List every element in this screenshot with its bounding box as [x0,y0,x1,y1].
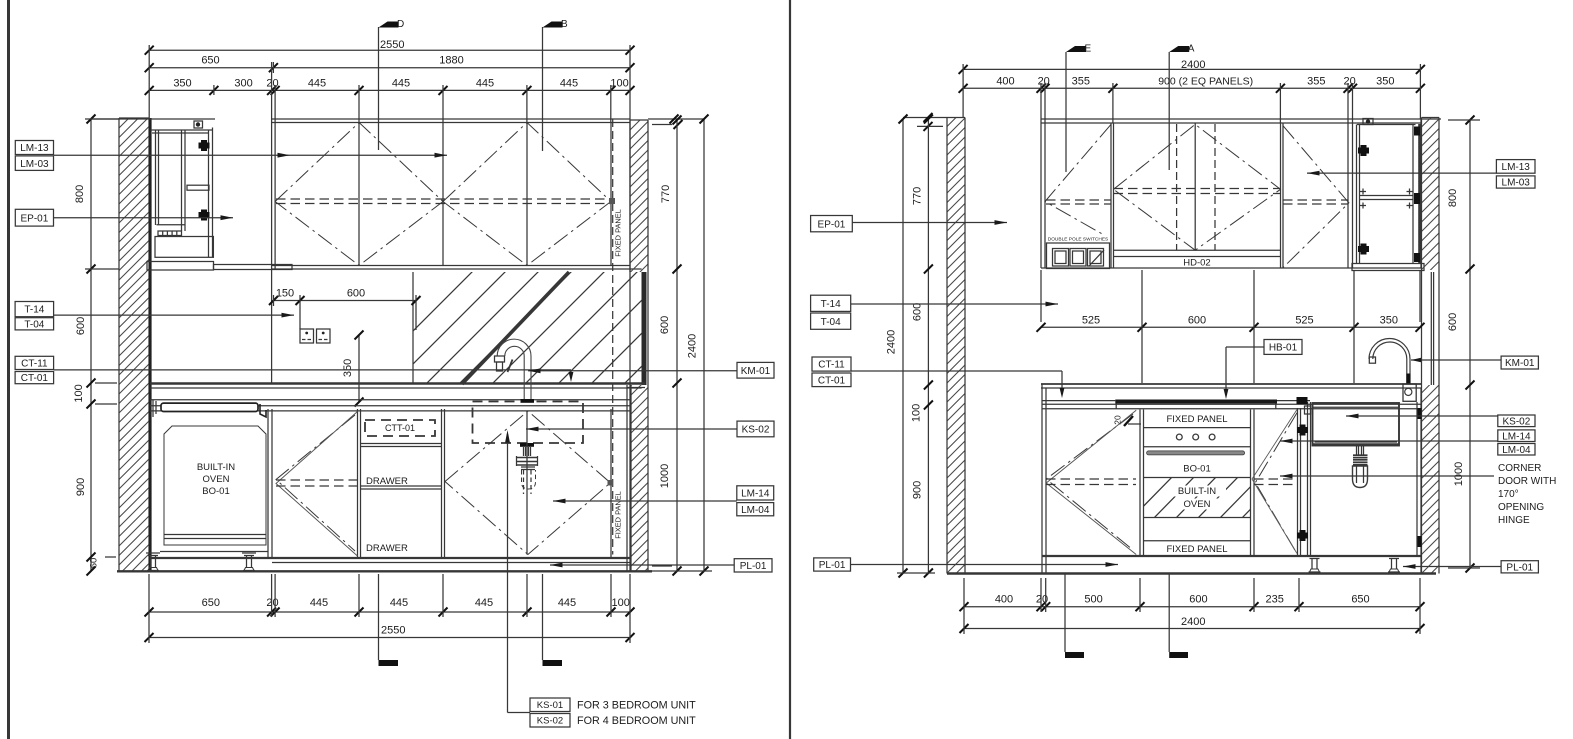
svg-text:D: D [397,19,404,30]
svg-text:900: 900 [75,478,87,496]
svg-text:LM-13: LM-13 [1502,162,1531,173]
svg-text:2550: 2550 [381,625,405,637]
svg-text:LM-03: LM-03 [1502,178,1531,189]
svg-text:KM-01: KM-01 [741,366,771,377]
svg-text:T-14: T-14 [24,305,44,316]
svg-text:KS-01: KS-01 [537,700,563,711]
svg-text:LM-14: LM-14 [1502,431,1531,442]
svg-text:FIXED PANEL: FIXED PANEL [1166,414,1227,425]
svg-text:KS-02: KS-02 [1503,416,1531,427]
svg-text:2550: 2550 [380,39,404,51]
svg-text:KM-01: KM-01 [1505,358,1535,369]
svg-text:355: 355 [1072,76,1090,88]
svg-text:DOOR WITH: DOOR WITH [1498,476,1556,487]
svg-text:LM-14: LM-14 [741,489,770,500]
svg-text:170°: 170° [1498,489,1519,500]
svg-text:FOR 4 BEDROOM UNIT: FOR 4 BEDROOM UNIT [577,715,696,727]
svg-text:HINGE: HINGE [1498,515,1530,526]
svg-text:DOUBLE POLE SWITCHES: DOUBLE POLE SWITCHES [1048,237,1109,243]
svg-text:445: 445 [560,78,578,90]
svg-text:FIXED PANEL: FIXED PANEL [614,491,623,539]
svg-text:600: 600 [1189,594,1207,606]
svg-text:DRAWER: DRAWER [366,476,408,487]
svg-text:FOR 3 BEDROOM UNIT: FOR 3 BEDROOM UNIT [577,700,696,712]
svg-text:100: 100 [610,78,628,90]
svg-text:OVEN: OVEN [203,474,230,485]
svg-text:PL-01: PL-01 [1506,562,1533,573]
svg-text:60: 60 [89,558,100,569]
svg-text:400: 400 [995,594,1013,606]
svg-text:DRAWER: DRAWER [366,543,408,554]
svg-text:BUILT-IN: BUILT-IN [1178,486,1216,497]
svg-text:525: 525 [1295,315,1313,327]
svg-text:100: 100 [911,404,923,422]
svg-text:20: 20 [1038,76,1050,88]
svg-text:BUILT-IN: BUILT-IN [197,462,235,473]
svg-text:770: 770 [912,187,924,205]
svg-text:OVEN: OVEN [1184,499,1211,510]
svg-text:600: 600 [1447,313,1459,331]
svg-text:445: 445 [308,78,326,90]
svg-text:600: 600 [1188,315,1206,327]
svg-text:20: 20 [266,597,278,609]
svg-text:20: 20 [1343,76,1355,88]
svg-text:2400: 2400 [1181,616,1205,628]
svg-text:BO-01: BO-01 [202,486,229,497]
svg-text:350: 350 [1376,76,1394,88]
svg-text:600: 600 [659,316,671,334]
svg-text:CT-01: CT-01 [21,373,49,384]
svg-text:T-04: T-04 [821,317,841,328]
svg-text:B: B [561,19,568,30]
svg-text:525: 525 [1082,315,1100,327]
svg-text:235: 235 [1266,594,1284,606]
svg-text:HD-02: HD-02 [1183,258,1210,269]
svg-text:CTT-01: CTT-01 [385,423,415,433]
svg-text:445: 445 [310,597,328,609]
svg-text:770: 770 [660,185,672,203]
svg-text:2400: 2400 [1181,59,1205,71]
svg-text:LM-04: LM-04 [741,505,770,516]
svg-text:T-14: T-14 [821,299,841,310]
svg-text:600: 600 [347,288,365,300]
svg-text:100: 100 [73,384,85,402]
svg-text:600: 600 [75,317,87,335]
svg-text:900: 900 [912,481,924,499]
svg-text:LM-03: LM-03 [20,159,49,170]
svg-text:350: 350 [342,359,354,377]
svg-text:OPENING: OPENING [1498,502,1544,513]
svg-text:20: 20 [266,78,278,90]
svg-text:445: 445 [392,78,410,90]
svg-text:LM-04: LM-04 [1502,445,1531,456]
svg-text:2400: 2400 [687,334,699,358]
svg-text:445: 445 [390,597,408,609]
svg-text:CT-11: CT-11 [818,360,845,371]
svg-text:BO-01: BO-01 [1183,464,1210,475]
svg-text:A: A [1188,44,1195,55]
svg-text:445: 445 [476,78,494,90]
svg-text:650: 650 [202,597,220,609]
svg-text:500: 500 [1084,594,1102,606]
svg-text:900 (2 EQ PANELS): 900 (2 EQ PANELS) [1158,76,1253,88]
svg-text:445: 445 [558,597,576,609]
svg-text:1880: 1880 [439,55,463,67]
svg-text:1000: 1000 [659,464,671,488]
svg-text:600: 600 [912,303,924,321]
svg-text:800: 800 [74,185,86,203]
svg-text:CORNER: CORNER [1498,463,1541,474]
svg-text:LM-13: LM-13 [20,143,49,154]
svg-text:100: 100 [612,597,630,609]
svg-text:PL-01: PL-01 [740,561,767,572]
svg-text:FIXED PANEL: FIXED PANEL [614,209,623,257]
svg-text:T-04: T-04 [24,319,44,330]
svg-text:355: 355 [1307,76,1325,88]
svg-text:CT-11: CT-11 [21,359,48,370]
svg-text:1000: 1000 [1453,462,1465,486]
svg-text:EP-01: EP-01 [818,219,846,230]
svg-text:EP-01: EP-01 [21,213,49,224]
svg-text:650: 650 [201,55,219,67]
svg-text:650: 650 [1351,594,1369,606]
svg-text:KS-02: KS-02 [537,716,563,727]
svg-text:CT-01: CT-01 [818,375,846,386]
svg-text:400: 400 [996,76,1014,88]
svg-text:KS-02: KS-02 [742,425,770,436]
svg-text:PL-01: PL-01 [819,560,846,571]
svg-text:E: E [1085,44,1092,55]
svg-text:HB-01: HB-01 [1269,343,1298,354]
svg-text:350: 350 [173,78,191,90]
svg-text:300: 300 [234,78,252,90]
svg-text:150: 150 [276,288,294,300]
svg-text:350: 350 [1380,315,1398,327]
svg-text:2400: 2400 [886,330,898,354]
svg-text:800: 800 [1447,189,1459,207]
svg-text:445: 445 [475,597,493,609]
svg-text:FIXED PANEL: FIXED PANEL [1166,544,1227,555]
